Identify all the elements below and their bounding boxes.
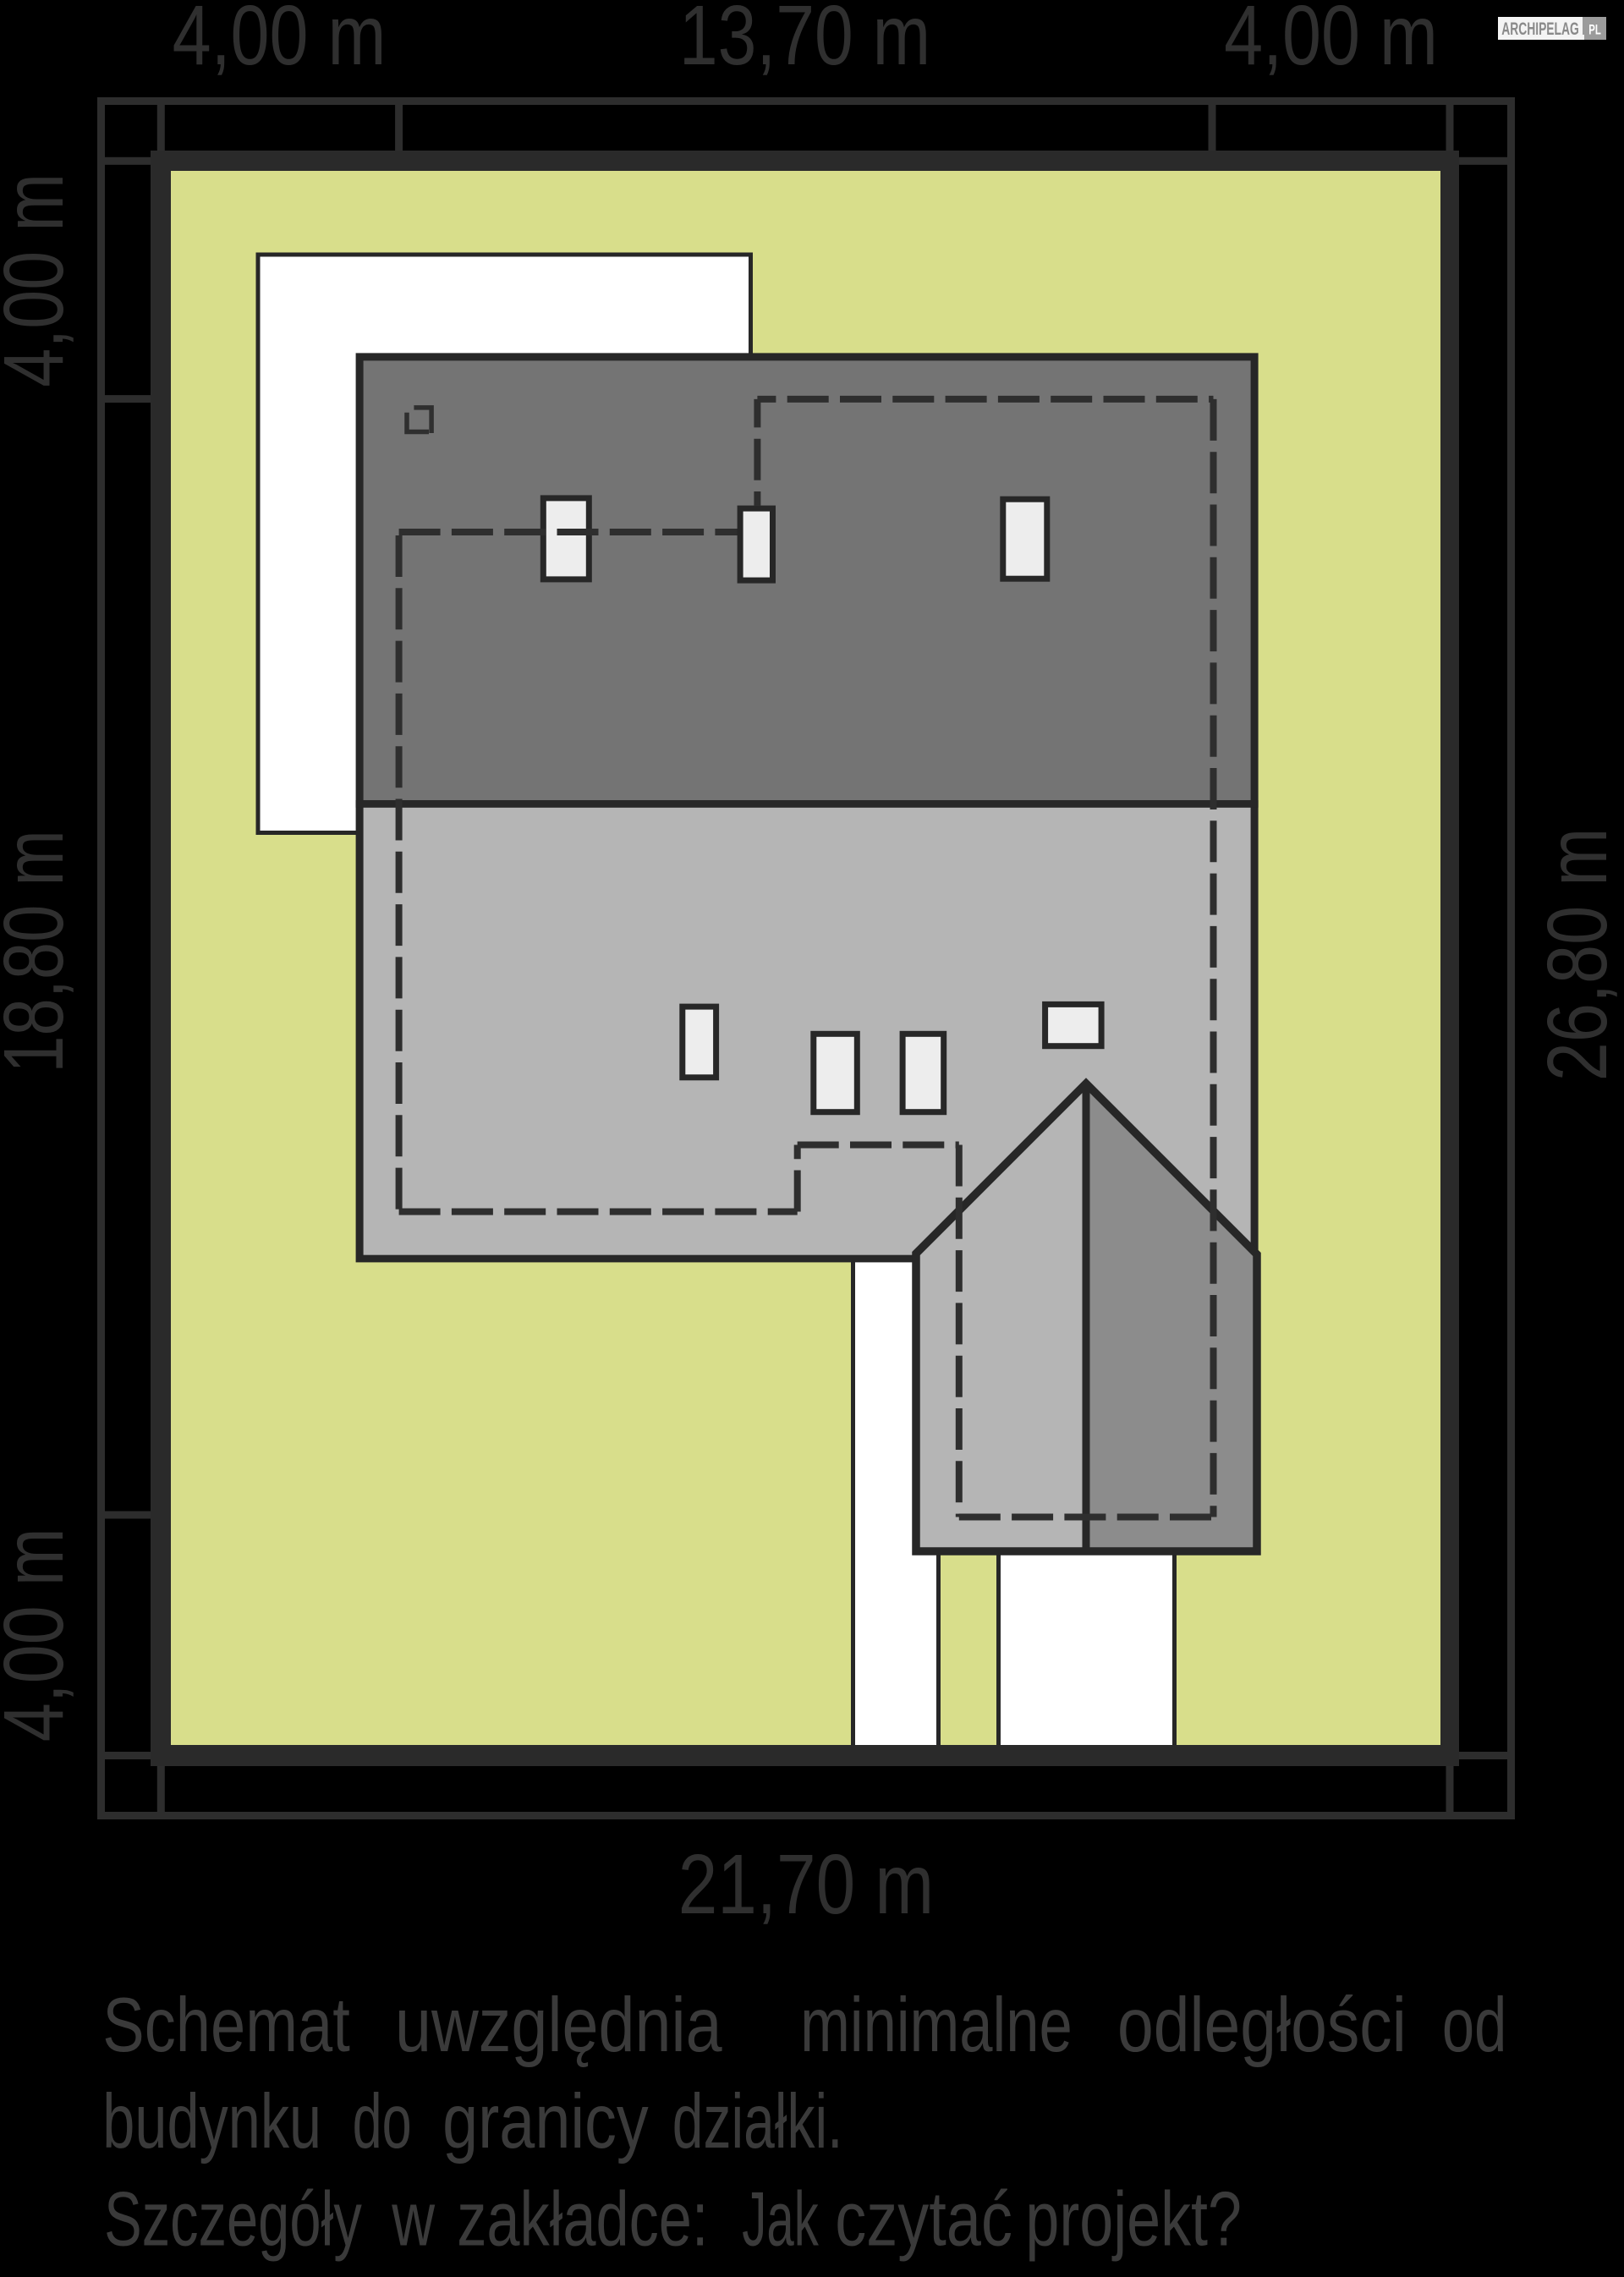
svg-text:21,70 m: 21,70 m [678, 1837, 934, 1932]
svg-text:4,00 m: 4,00 m [1224, 0, 1438, 83]
svg-text:PL: PL [1588, 22, 1601, 38]
svg-text:uwzględnia: uwzględnia [395, 1982, 722, 2067]
svg-text:zakładce:: zakładce: [457, 2176, 708, 2263]
svg-text:do: do [353, 2077, 412, 2164]
svg-text:13,70 m: 13,70 m [679, 0, 930, 83]
svg-text:budynku: budynku [102, 2079, 321, 2165]
svg-text:4,00 m: 4,00 m [173, 0, 387, 83]
svg-text:w: w [391, 2176, 435, 2263]
svg-text:czytać: czytać [835, 2175, 1012, 2262]
svg-text:odległości: odległości [1117, 1982, 1407, 2068]
svg-text:granicy: granicy [442, 2077, 649, 2164]
svg-text:działki.: działki. [672, 2078, 843, 2165]
svg-text:Schemat: Schemat [102, 1982, 350, 2068]
svg-text:Szczegóły: Szczegóły [104, 2176, 362, 2262]
svg-text:od: od [1442, 1983, 1506, 2069]
svg-text:18,80 m: 18,80 m [0, 830, 81, 1073]
svg-text:minimalne: minimalne [800, 1982, 1073, 2068]
svg-text:4,00 m: 4,00 m [0, 1528, 81, 1742]
svg-text:26,80 m: 26,80 m [1531, 828, 1624, 1081]
svg-text:ARCHIPELAG: ARCHIPELAG [1501, 19, 1579, 39]
svg-text:4,00 m: 4,00 m [0, 173, 81, 387]
svg-text:Jak: Jak [742, 2177, 819, 2263]
svg-text:projekt?: projekt? [1025, 2177, 1242, 2263]
